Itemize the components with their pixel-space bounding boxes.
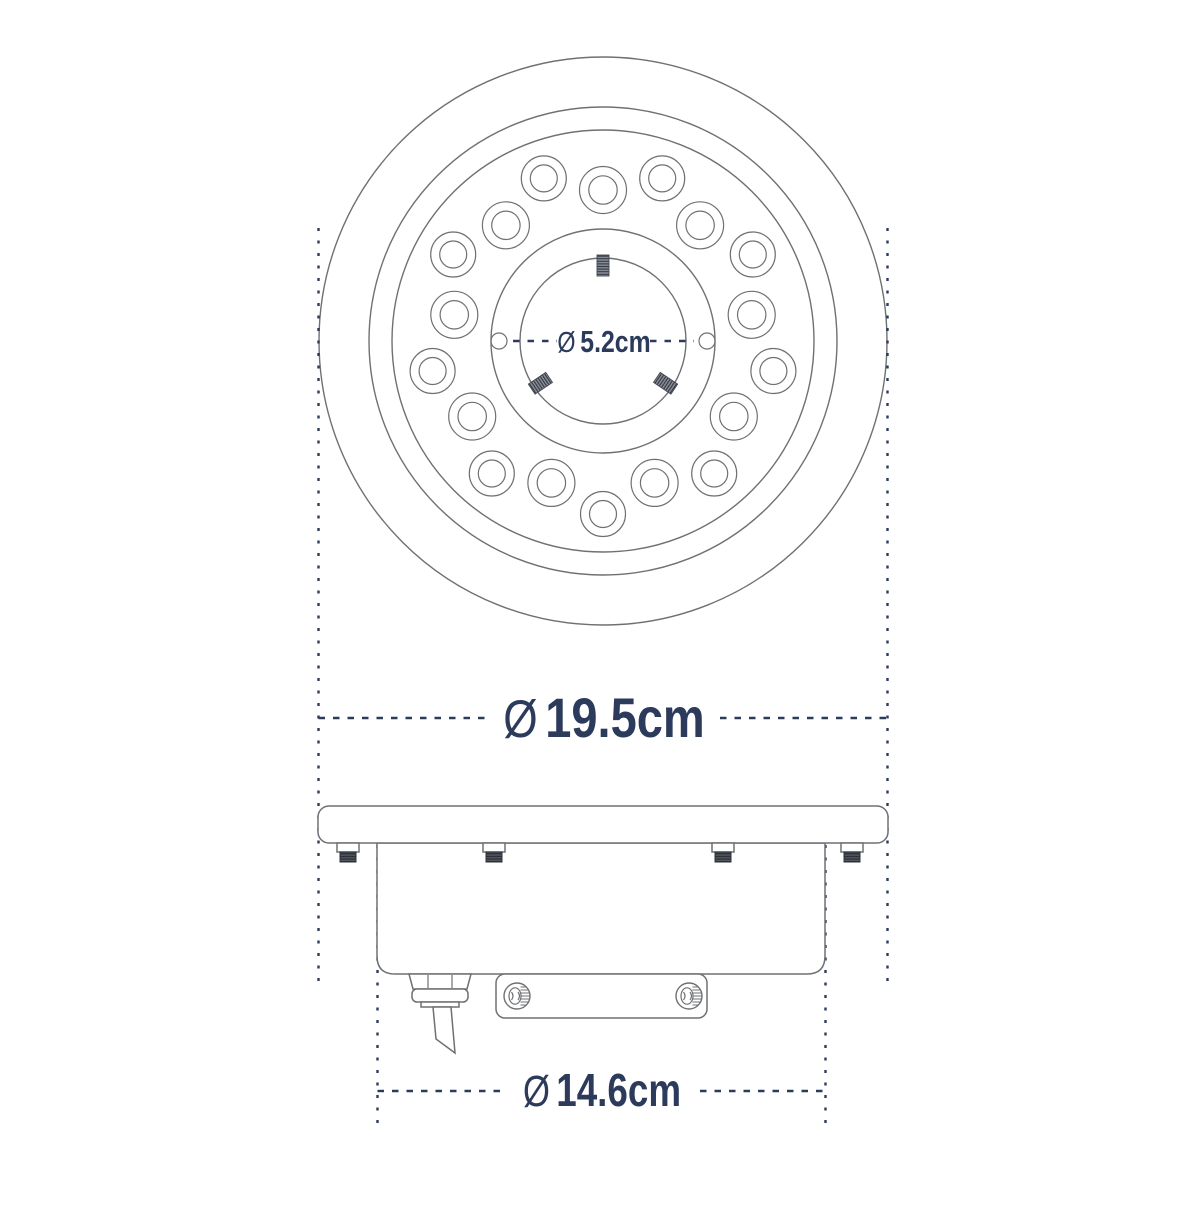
dimension-label-outer: Ø19.5cm (503, 686, 704, 749)
led-hole-inner (440, 241, 467, 268)
technical-drawing: Ø5.2cm Ø19.5cm (0, 0, 1200, 1205)
led-hole-outer (677, 202, 724, 249)
led-hole-inner (640, 469, 668, 497)
cable-stub (433, 1007, 455, 1053)
led-hole-inner (537, 469, 565, 497)
led-hole-outer (728, 291, 775, 338)
gland-nut (409, 974, 471, 989)
side-view (318, 806, 888, 1053)
led-hole-inner (739, 241, 766, 268)
lamp-body (377, 843, 825, 974)
led-hole-outer (730, 232, 775, 277)
drawing-canvas: Ø5.2cm Ø19.5cm (0, 0, 1200, 1200)
led-hole-inner (590, 501, 617, 528)
led-hole-inner (440, 301, 468, 329)
led-hole-inner (458, 402, 486, 430)
threaded-stud-left (528, 372, 552, 394)
led-hole-outer (521, 156, 566, 201)
dimension-body: Ø14.6cm (378, 1064, 826, 1116)
mounting-hole-left (491, 333, 507, 349)
led-hole-inner (530, 165, 557, 192)
dimension-label-hub: Ø5.2cm (557, 324, 650, 358)
led-hole-outer (469, 451, 514, 496)
led-hole-outer (640, 156, 685, 201)
led-hole-outer (410, 349, 455, 394)
led-hole-inner (419, 358, 446, 385)
led-hole-outer (751, 349, 796, 394)
led-hole-outer (631, 459, 678, 506)
mounting-hole-right (699, 333, 715, 349)
led-hole-inner (492, 211, 520, 239)
led-hole-outer (692, 451, 737, 496)
led-hole-inner (686, 211, 714, 239)
led-hole-inner (760, 358, 787, 385)
led-hole-outer (431, 291, 478, 338)
dimension-label-body: Ø14.6cm (523, 1064, 681, 1116)
bolt (841, 843, 863, 862)
threaded-stud-top (597, 255, 609, 276)
led-hole-inner (720, 402, 748, 430)
bolt (337, 843, 359, 862)
led-hole-outer (431, 232, 476, 277)
mounting-bracket (496, 974, 707, 1018)
cable-gland (409, 974, 471, 1053)
top-view: Ø5.2cm (319, 57, 887, 625)
led-hole-inner (701, 460, 728, 487)
led-hole-outer (710, 393, 757, 440)
led-hole-inner (649, 165, 676, 192)
led-hole-outer (528, 459, 575, 506)
led-hole-outer (581, 492, 626, 537)
led-hole-outer (580, 167, 627, 214)
led-hole-outer (482, 202, 529, 249)
led-hole-inner (478, 460, 505, 487)
gland-ring (412, 989, 468, 1002)
threaded-stud-right (654, 372, 678, 394)
dimension-hub: Ø5.2cm (513, 324, 694, 358)
led-hole-inner (589, 176, 617, 204)
bolt (483, 843, 505, 862)
lamp-flange (318, 806, 888, 843)
led-hole-outer (449, 393, 496, 440)
led-hole-inner (738, 301, 766, 329)
dimension-outer: Ø19.5cm (319, 686, 888, 749)
bolt (712, 843, 734, 862)
